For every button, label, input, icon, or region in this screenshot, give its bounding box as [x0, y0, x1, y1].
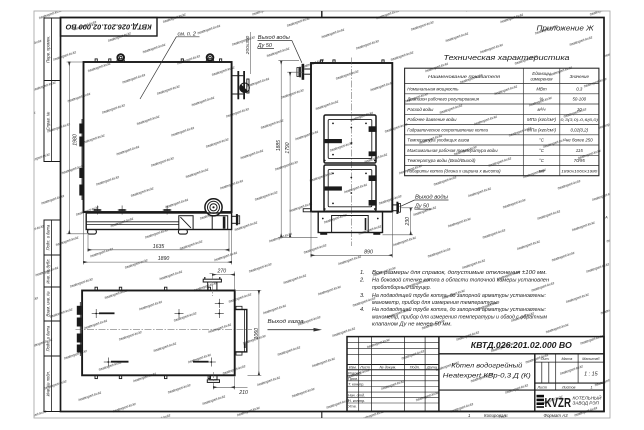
svg-text:КВТД.026.201.02.000 ВО: КВТД.026.201.02.000 ВО	[471, 341, 573, 350]
svg-text:°С: °С	[539, 158, 545, 163]
svg-text:не более 250: не более 250	[566, 138, 593, 143]
svg-text:Диапазон рабочего регулировани: Диапазон рабочего регулирования	[406, 97, 479, 102]
svg-text:№ докум.: № докум.	[380, 366, 397, 370]
svg-text:Расход воды: Расход воды	[407, 107, 434, 112]
svg-text:Копировал: Копировал	[484, 413, 506, 418]
svg-text:Подп. и дата: Подп. и дата	[45, 224, 50, 250]
svg-text:4.: 4.	[360, 307, 365, 313]
svg-text:Значение: Значение	[570, 74, 590, 79]
svg-text:Приложение Ж: Приложение Ж	[537, 23, 594, 32]
svg-text:Heatexpert КВр-0,3 Д (К): Heatexpert КВр-0,3 Д (К)	[443, 373, 531, 380]
svg-text:Утв.: Утв.	[348, 405, 357, 409]
svg-text:МПа (кгс/см²): МПа (кгс/см²)	[527, 127, 557, 132]
svg-text:Листов: Листов	[561, 386, 576, 390]
svg-text:Выход газов: Выход газов	[268, 319, 304, 325]
svg-text:0,02(0,2): 0,02(0,2)	[571, 127, 589, 132]
svg-text:измерения: измерения	[531, 77, 554, 82]
svg-text:Габариты котла (длина х ширина: Габариты котла (длина х ширина х высота)	[407, 168, 501, 173]
svg-text:890: 890	[364, 249, 373, 255]
svg-text:Техническая характеристика: Техническая характеристика	[444, 53, 570, 62]
svg-text:Масса: Масса	[561, 357, 572, 361]
svg-text:115: 115	[576, 148, 584, 153]
svg-text:Все размеры для справок, допус: Все размеры для справок, допустимые откл…	[372, 270, 547, 276]
svg-text:проботборный штуцер.: проботборный штуцер.	[372, 284, 431, 291]
svg-text:Максимальная рабочая температу: Максимальная рабочая температура воды	[407, 148, 498, 153]
svg-text:1635: 1635	[153, 244, 165, 250]
svg-text:Гидравлическое сопротивление к: Гидравлическое сопротивление котла	[407, 127, 488, 132]
svg-text:1790: 1790	[285, 142, 291, 153]
svg-text:Ду 50: Ду 50	[257, 43, 272, 49]
svg-text:200х390: 200х390	[245, 35, 251, 55]
svg-text:50-100: 50-100	[572, 97, 586, 102]
svg-text:манометр, прибор для измерения: манометр, прибор для измерения температу…	[372, 300, 499, 306]
svg-text:Лит.: Лит.	[540, 357, 550, 361]
svg-text:1890х1060х1980: 1890х1060х1980	[561, 168, 598, 173]
svg-text:Масштаб: Масштаб	[582, 357, 600, 361]
svg-text:На подводящей трубе котла, до: На подводящей трубе котла, до запорной а…	[372, 292, 546, 299]
svg-text:А: А	[604, 216, 608, 220]
svg-text:0,3: 0,3	[576, 86, 583, 91]
svg-text:клапаном Ду не менее 50 мм.: клапаном Ду не менее 50 мм.	[372, 321, 452, 327]
svg-text:1.: 1.	[360, 270, 365, 276]
svg-text:Инв. № дубл.: Инв. № дубл.	[45, 258, 50, 283]
svg-text:На подводящей трубе котла, до: На подводящей трубе котла, до запорной а…	[372, 306, 546, 313]
svg-text:Лист: Лист	[359, 366, 370, 370]
svg-text:10: 10	[577, 107, 582, 112]
svg-text:1890: 1890	[158, 256, 170, 262]
svg-text:Т. контр.: Т. контр.	[348, 383, 364, 387]
svg-text:0,3(3,0)-0,6(6,0): 0,3(3,0)-0,6(6,0)	[561, 117, 599, 122]
svg-text:мм: мм	[538, 168, 544, 173]
svg-text:Н. контр.: Н. контр.	[348, 399, 365, 403]
svg-text:На боковой стенке котла в обла: На боковой стенке котла в области топочн…	[372, 277, 549, 284]
svg-text:Выход воды: Выход воды	[415, 194, 448, 200]
svg-text:°С: °С	[539, 148, 545, 153]
svg-text:Единицы: Единицы	[532, 71, 551, 76]
svg-text:Подп. и дата: Подп. и дата	[45, 325, 50, 351]
svg-text:Рабочее давление воды: Рабочее давление воды	[407, 117, 457, 122]
svg-text:см. п. 2: см. п. 2	[178, 31, 196, 37]
svg-text:2.: 2.	[359, 278, 365, 284]
svg-text:м³/ч: м³/ч	[538, 107, 547, 112]
svg-text:Инв. № подл.: Инв. № подл.	[45, 371, 50, 396]
svg-text:%: %	[540, 97, 544, 102]
svg-text:1885: 1885	[276, 140, 282, 151]
svg-text:Перв. примен.: Перв. примен.	[45, 36, 50, 63]
svg-text:Температура воды (Вход/Выход): Температура воды (Вход/Выход)	[407, 158, 476, 163]
svg-text:манометр, прибор для измерения: манометр, прибор для измерения температу…	[372, 314, 547, 320]
svg-text:КОТЕЛЬНЫЙ: КОТЕЛЬНЫЙ	[573, 393, 603, 400]
svg-text:Котел водогрейный: Котел водогрейный	[451, 362, 522, 370]
svg-text:Нач. отд.: Нач. отд.	[348, 394, 365, 398]
svg-text:Взам. инв. №: Взам. инв. №	[45, 291, 50, 317]
svg-text:Разраб.: Разраб.	[348, 371, 362, 375]
svg-text:Наименование показателя: Наименование показателя	[428, 74, 501, 79]
svg-text:70/95: 70/95	[574, 158, 586, 163]
svg-text:Формат А3: Формат А3	[544, 413, 569, 418]
svg-text:210: 210	[238, 390, 248, 396]
svg-text:1980: 1980	[73, 134, 79, 146]
svg-text:Пров.: Пров.	[348, 377, 358, 381]
svg-text:КВТД.026.201.02.000 ВО: КВТД.026.201.02.000 ВО	[65, 22, 151, 31]
svg-text:Подп.: Подп.	[410, 366, 420, 370]
svg-text:Температура уходящих газов: Температура уходящих газов	[407, 138, 470, 143]
svg-text:Номинальная мощность: Номинальная мощность	[407, 86, 459, 91]
svg-text:°С: °С	[539, 138, 545, 143]
svg-text:1060: 1060	[254, 328, 260, 340]
svg-text:3.: 3.	[360, 293, 365, 299]
svg-text:Ду 50: Ду 50	[414, 204, 429, 210]
svg-text:1: 1	[591, 386, 593, 390]
svg-text:МВт: МВт	[536, 86, 547, 91]
svg-text:ЗАВОД РЭП: ЗАВОД РЭП	[573, 401, 600, 406]
svg-text:МПа (кгс/см²): МПа (кгс/см²)	[527, 117, 557, 122]
svg-text:Лист: Лист	[537, 386, 548, 390]
svg-text:Дата: Дата	[426, 366, 437, 370]
svg-text:Выход воды: Выход воды	[258, 35, 290, 41]
svg-text:1 : 15: 1 : 15	[584, 371, 598, 377]
svg-text:KVZR: KVZR	[545, 395, 572, 410]
svg-text:Изм.: Изм.	[349, 366, 357, 370]
svg-text:270: 270	[216, 269, 226, 275]
svg-text:230: 230	[405, 217, 411, 227]
svg-text:Справ. №: Справ. №	[45, 111, 50, 130]
